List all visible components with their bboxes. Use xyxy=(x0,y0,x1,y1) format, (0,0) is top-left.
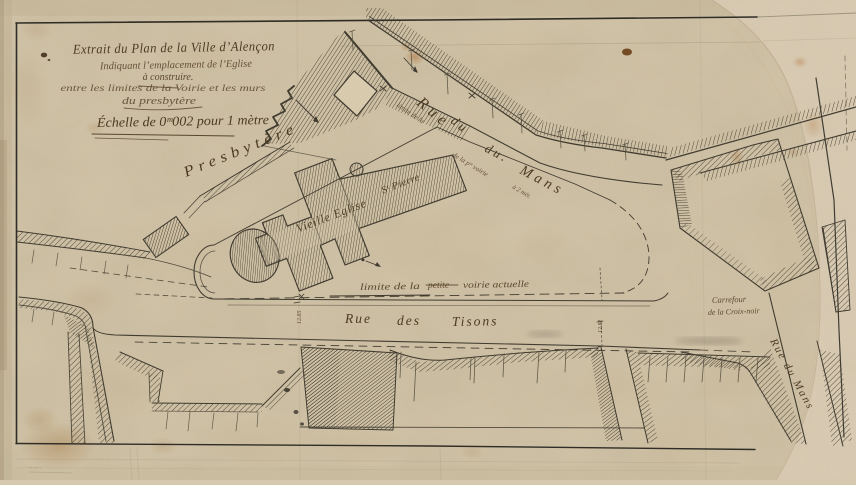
svg-text:entre les limites de la Voirie: entre les limites de la Voirie et les mu… xyxy=(61,84,266,94)
svg-text:des: des xyxy=(397,313,421,328)
svg-text:Rue: Rue xyxy=(344,311,372,326)
svg-text:à construire.: à construire. xyxy=(143,72,194,83)
svg-text:du presbytère: du presbytère xyxy=(122,96,196,107)
svg-text:voirie actuelle: voirie actuelle xyxy=(463,280,529,291)
svg-text:de la Croix-noir: de la Croix-noir xyxy=(708,306,761,317)
svg-text:Tisons: Tisons xyxy=(452,313,499,329)
svg-text:12.85: 12.85 xyxy=(297,311,303,325)
svg-text:petite: petite xyxy=(427,281,449,291)
svg-text:……: …… xyxy=(28,461,42,470)
svg-text:limite de la: limite de la xyxy=(360,282,421,293)
svg-text:Carrefour: Carrefour xyxy=(712,294,747,305)
svg-text:Échelle de 0ᵐ002 pour 1 mètre: Échelle de 0ᵐ002 pour 1 mètre xyxy=(96,112,269,130)
